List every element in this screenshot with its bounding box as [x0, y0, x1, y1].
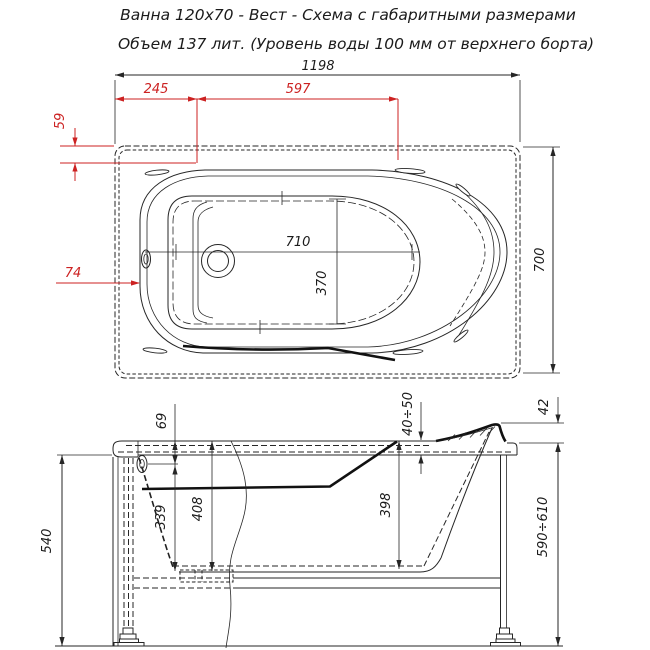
section-break-line [226, 441, 246, 648]
contour-lens [145, 169, 169, 176]
dim-overall-height-label: 590÷610 [536, 497, 551, 558]
dim-head-inner-depth-label: 398 [379, 493, 394, 518]
seat-step-outer [193, 202, 207, 323]
dim-plan-height: 700 [523, 147, 560, 373]
contour-lens [143, 347, 167, 354]
dim-lumbar-span: 597 [197, 82, 398, 163]
dim-floor-width-label: 370 [315, 271, 330, 296]
dim-floor-width: 370 [315, 199, 346, 324]
dim-rim-top-inset-label: 59 [53, 113, 68, 130]
dim-overflow-to-bottom-label: 339 [154, 505, 169, 530]
dim-overall-height: 590÷610 [536, 443, 561, 646]
basin-contour-inner [173, 201, 414, 324]
dim-overall-width-label: 1198 [301, 59, 334, 74]
dim-drain-offset-label: 245 [144, 82, 169, 97]
dim-overflow-from-rim-label: 69 [155, 413, 170, 430]
overflow-hole-outer [142, 250, 151, 268]
top-view: 1198 245 597 59 [53, 59, 560, 378]
contour-lens [395, 168, 425, 175]
head-end-slope [441, 428, 492, 558]
dim-rim-edge-height-label: 40÷50 [401, 392, 416, 436]
contour-lens [455, 183, 471, 198]
dim-rim-side-inset-label: 74 [65, 266, 82, 281]
dim-panel-height-label: 540 [40, 529, 55, 554]
dim-drain-offset: 245 [115, 82, 197, 102]
backrest-arc-hidden [450, 199, 485, 326]
shell-contour-outer [140, 170, 507, 353]
side-view: 69 339 408 398 40÷50 [40, 392, 564, 648]
drawing-page: Ванна 120х70 - Вест - Схема с габаритным… [0, 0, 650, 650]
drawing-subtitle: Объем 137 лит. (Уровень воды 100 мм от в… [118, 35, 594, 53]
dim-headrest-rise-label: 42 [537, 399, 552, 416]
contour-lens [393, 349, 423, 356]
contour-lens [453, 329, 469, 344]
dim-rim-side-inset: 74 [56, 266, 140, 286]
dim-inner-depth-label: 408 [191, 497, 206, 522]
drain-hole-outer [202, 245, 235, 278]
bathtub-technical-drawing: Ванна 120х70 - Вест - Схема с габаритным… [0, 0, 650, 650]
dim-rim-top-inset: 59 [53, 113, 196, 181]
dim-overall-width: 1198 [115, 59, 520, 144]
dim-head-inner-depth: 398 [379, 441, 402, 569]
water-level-line [142, 442, 397, 490]
dim-floor-length-label: 710 [286, 235, 311, 250]
dim-rim-edge-height: 40÷50 [401, 392, 424, 474]
dim-overflow-to-bottom: 339 [154, 464, 178, 571]
dim-plan-height-label: 700 [533, 248, 548, 273]
dim-floor-length: 710 [176, 235, 412, 260]
basin-contour-outer [168, 196, 420, 329]
seat-step-inner [198, 207, 213, 318]
rim-band-cap [113, 441, 138, 457]
dim-lumbar-span-label: 597 [286, 82, 312, 97]
dim-headrest-rise: 42 [501, 397, 564, 468]
bottom-outer-edge [179, 558, 441, 572]
drain-hole-inner [208, 251, 229, 272]
rim-outer-edge [115, 146, 520, 378]
drawing-title: Ванна 120х70 - Вест - Схема с габаритным… [120, 6, 576, 24]
rim-right-end [507, 443, 517, 455]
title-block: Ванна 120х70 - Вест - Схема с габаритным… [118, 6, 594, 53]
front-foot [114, 628, 144, 646]
overflow-hole-inner [144, 254, 148, 264]
dim-panel-height: 540 [40, 455, 112, 646]
rear-foot [491, 628, 521, 646]
dim-inner-depth: 408 [191, 441, 215, 571]
